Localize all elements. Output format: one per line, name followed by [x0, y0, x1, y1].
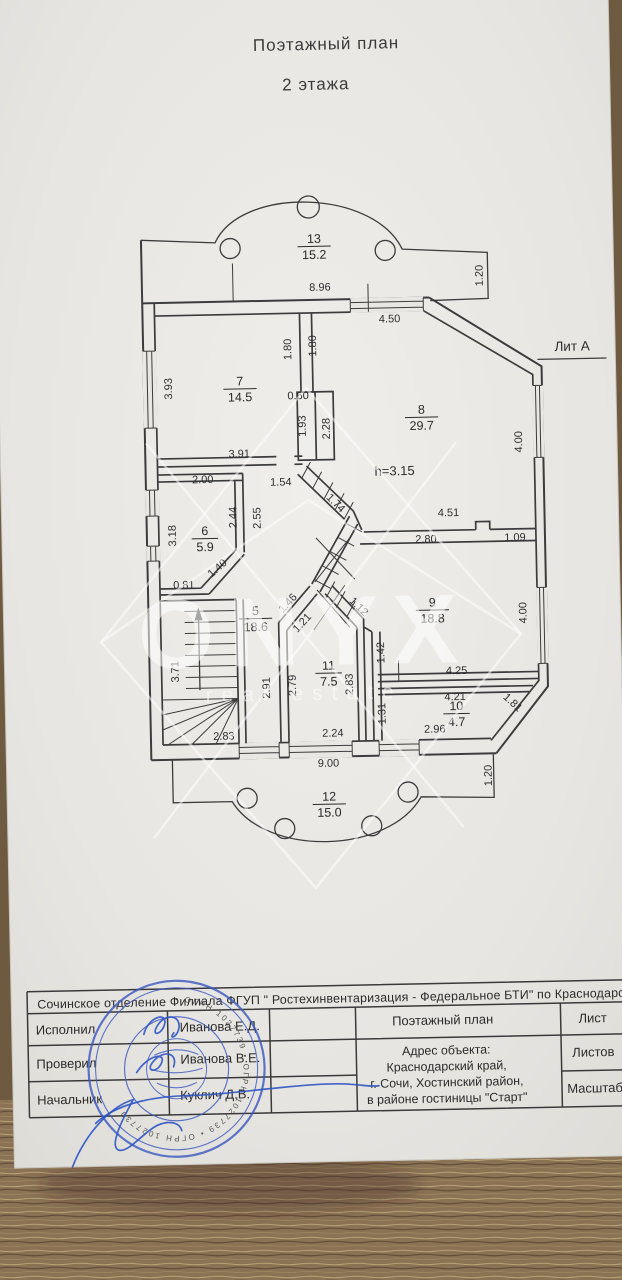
dimension-label: 4.50 [379, 313, 401, 325]
watermark-subtext: real estate [205, 680, 402, 707]
svg-text:15.0: 15.0 [317, 805, 342, 819]
row-role-1: Исполнил [36, 1021, 96, 1037]
dimension-label: 2.24 [322, 727, 344, 739]
scanned-floor-plan-photo: Поэтажный план 2 этажа [0, 0, 622, 1280]
dimension-label: 2.00 [192, 474, 214, 486]
scale-label: Масштаб [567, 1080, 622, 1096]
dimension-label: 1.80 [282, 339, 294, 361]
dimension-label: 8.96 [309, 282, 331, 294]
dimension-label: 4.21 [444, 691, 466, 703]
dimension-label: 1.80 [307, 335, 319, 357]
sheets-label: Листов [572, 1044, 615, 1060]
dimension-label: 4.00 [513, 431, 525, 453]
dimension-label: 3.93 [163, 378, 175, 400]
address-label: Адрес объекта: [402, 1042, 491, 1058]
paper-sheet: Поэтажный план 2 этажа [0, 0, 622, 1168]
dimension-label: 1.09 [504, 532, 526, 544]
address-line: Краснодарский край, [386, 1058, 506, 1074]
liter-label: Лит А [554, 338, 590, 354]
svg-text:12: 12 [322, 790, 336, 804]
watermark-text: ONYX [137, 573, 473, 690]
ceiling-height-note: h=3.15 [374, 463, 414, 479]
dimension-label: 1.20 [483, 765, 495, 787]
dimension-label: 2.44 [227, 507, 239, 529]
dimension-label: 1.31 [376, 703, 388, 725]
sheet-label: Лист [578, 1010, 607, 1026]
dimension-label: 2.28 [321, 418, 333, 440]
svg-text:15.2: 15.2 [302, 248, 327, 262]
document-title-cell: Поэтажный план [392, 1011, 493, 1028]
svg-text:29.7: 29.7 [409, 418, 434, 432]
page-subtitle: 2 этажа [282, 74, 350, 94]
svg-text:14.5: 14.5 [228, 390, 253, 404]
row-name-1: Иванова Е.Д. [180, 1018, 260, 1035]
dimension-label: 4.00 [517, 602, 529, 624]
row-role-2: Проверил [36, 1055, 96, 1071]
dimension-label: 3.91 [228, 448, 250, 460]
svg-text:5.9: 5.9 [196, 540, 214, 554]
dimension-label: 9.00 [318, 757, 340, 769]
svg-text:8: 8 [418, 403, 425, 417]
svg-text:7: 7 [236, 374, 243, 388]
dimension-label: 1.54 [270, 476, 292, 488]
dimension-label: 1.20 [474, 265, 486, 287]
page-title: Поэтажный план [253, 33, 400, 55]
svg-text:13: 13 [307, 232, 321, 246]
svg-text:6: 6 [201, 524, 208, 538]
dimension-label: 3.18 [167, 525, 179, 547]
dimension-label: 1.93 [296, 415, 308, 437]
dimension-label: 4.51 [438, 507, 460, 519]
document-canvas: Поэтажный план 2 этажа [0, 0, 622, 1280]
dimension-label: 2.55 [251, 507, 263, 529]
